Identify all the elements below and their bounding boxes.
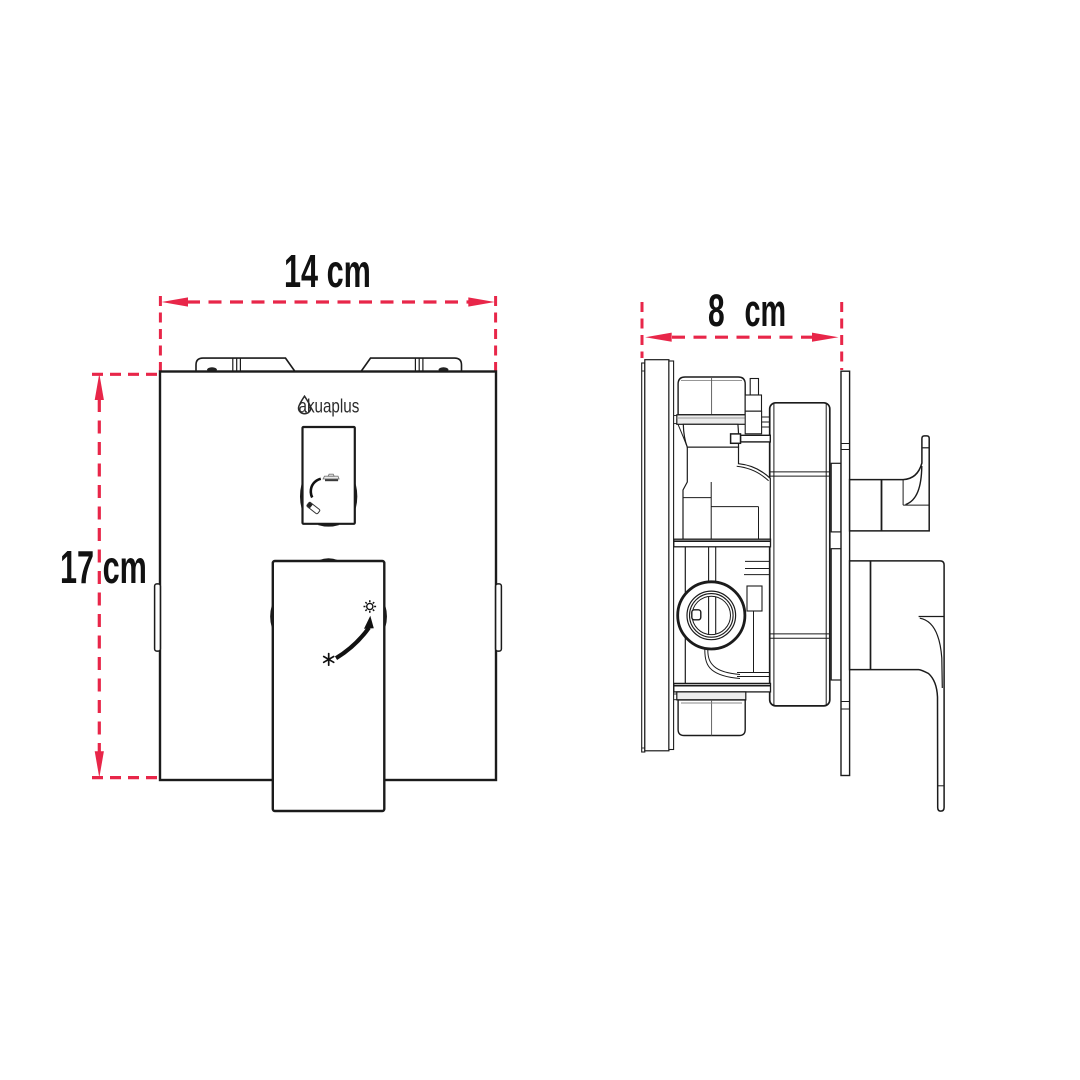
svg-text:8: 8 bbox=[708, 286, 725, 337]
svg-text:17 cm: 17 cm bbox=[60, 543, 147, 594]
svg-text:14 cm: 14 cm bbox=[284, 247, 371, 298]
svg-text:cm: cm bbox=[745, 287, 787, 337]
